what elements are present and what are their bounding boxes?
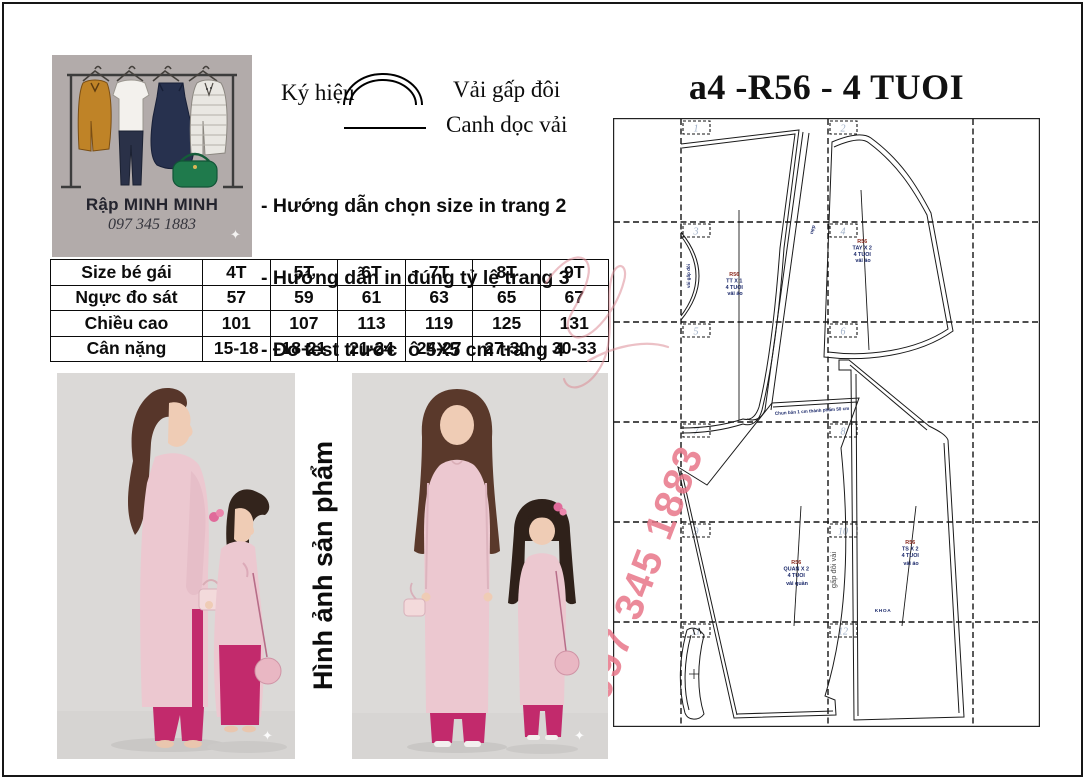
sparkle-icon: ✦ <box>262 728 273 744</box>
page-title: a4 -R56 - 4 TUOI <box>613 66 1040 108</box>
page-number: 6 <box>841 327 846 338</box>
page-number: 4 <box>841 227 846 238</box>
table-cell: Size bé gái <box>51 260 203 286</box>
table-cell: 63 <box>405 285 473 311</box>
table-cell: 21-24 <box>338 336 406 362</box>
table-row: Chiều cao 101 107 113 119 125 131 <box>51 311 609 337</box>
page-number: 8 <box>841 427 846 438</box>
table-cell: 8T <box>473 260 541 286</box>
page-number: 3 <box>693 227 699 238</box>
zipper-annotation: KHOA <box>875 608 892 614</box>
product-photo-front: ✦ <box>352 373 608 759</box>
page-number: 5 <box>694 327 699 338</box>
photo-caption-strip: Hình ảnh sản phẩm <box>295 373 352 759</box>
table-row: Cân nặng 15-18 18-21 21-24 24-27 27-30 3… <box>51 336 609 362</box>
pants-fold-annotation: gấp đôi vải <box>829 552 838 589</box>
brand-phone: 097 345 1883 <box>52 216 252 234</box>
table-cell: 57 <box>203 285 271 311</box>
photo-right-art <box>352 373 608 759</box>
product-photo-walking: ✦ <box>57 373 295 759</box>
table-cell: 107 <box>270 311 338 337</box>
table-cell: 65 <box>473 285 541 311</box>
table-row: Ngực đo sát 57 59 61 63 65 67 <box>51 285 609 311</box>
table-cell: 30-33 <box>540 336 608 362</box>
pattern-canvas: 1 2 3 4 5 6 7 8 9 10 11 12 <box>613 118 1040 727</box>
table-cell: 4T <box>203 260 271 286</box>
front-fold-annotation: vải gấp đôi <box>685 264 691 288</box>
pattern-layout: 1 2 3 4 5 6 7 8 9 10 11 12 <box>613 118 1040 727</box>
table-header-row: Size bé gái 4T 5T 6T 7T 8T 9T <box>51 260 609 286</box>
grain-line-icon <box>344 127 426 129</box>
clothes-rack-icon <box>57 61 247 193</box>
fold-symbol-label: Vải gấp đôi <box>453 77 560 103</box>
page-number: 2 <box>841 124 846 135</box>
table-cell: 24-27 <box>405 336 473 362</box>
table-cell: 18-21 <box>270 336 338 362</box>
page-number: 10 <box>838 527 848 538</box>
grain-symbol-label: Canh dọc vải <box>446 112 567 138</box>
table-cell: Chiều cao <box>51 311 203 337</box>
table-cell: 15-18 <box>203 336 271 362</box>
sparkle-icon: ✦ <box>574 728 585 744</box>
brand-name: Rập MINH MINH <box>52 195 252 215</box>
table-cell: Ngực đo sát <box>51 285 203 311</box>
table-cell: Cân nặng <box>51 336 203 362</box>
table-cell: 6T <box>338 260 406 286</box>
table-cell: 125 <box>473 311 541 337</box>
table-cell: 5T <box>270 260 338 286</box>
table-cell: 61 <box>338 285 406 311</box>
photo-left-art <box>57 373 295 759</box>
table-cell: 59 <box>270 285 338 311</box>
photo-caption: Hình ảnh sản phẩm <box>308 441 339 690</box>
table-cell: 113 <box>338 311 406 337</box>
table-cell: 67 <box>540 285 608 311</box>
table-cell: 9T <box>540 260 608 286</box>
fold-arc-icon <box>338 72 428 108</box>
page-number: 1 <box>694 124 699 135</box>
pattern-sheet: Rập MINH MINH 097 345 1883 ✦ Ký hiệu Vải… <box>0 0 1085 779</box>
size-table: Size bé gái 4T 5T 6T 7T 8T 9T Ngực đo sá… <box>50 259 609 362</box>
table-cell: 101 <box>203 311 271 337</box>
table-cell: 27-30 <box>473 336 541 362</box>
table-cell: 7T <box>405 260 473 286</box>
sparkle-icon: ✦ <box>230 227 241 243</box>
brand-logo-card: Rập MINH MINH 097 345 1883 ✦ <box>52 55 252 257</box>
table-cell: 119 <box>405 311 473 337</box>
table-cell: 131 <box>540 311 608 337</box>
instruction-line: - Hướng dẫn chọn size in trang 2 <box>261 194 570 218</box>
